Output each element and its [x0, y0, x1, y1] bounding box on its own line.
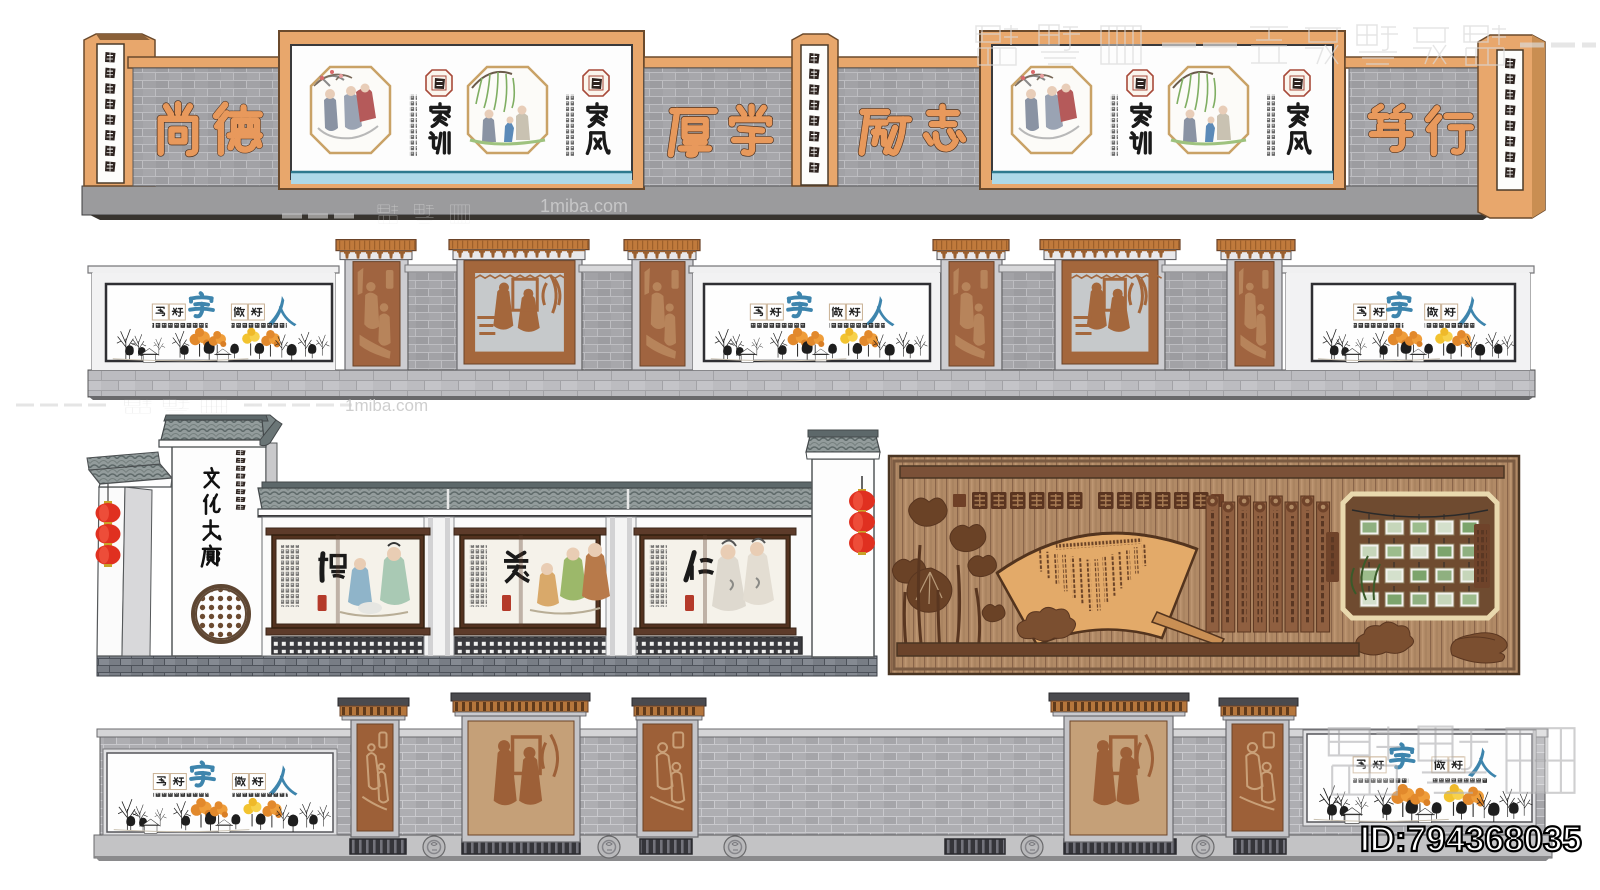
svg-text:1miba.com: 1miba.com	[345, 396, 428, 415]
svg-text:1miba.com: 1miba.com	[540, 196, 628, 216]
svg-text:ID:794368035: ID:794368035	[1360, 820, 1582, 859]
